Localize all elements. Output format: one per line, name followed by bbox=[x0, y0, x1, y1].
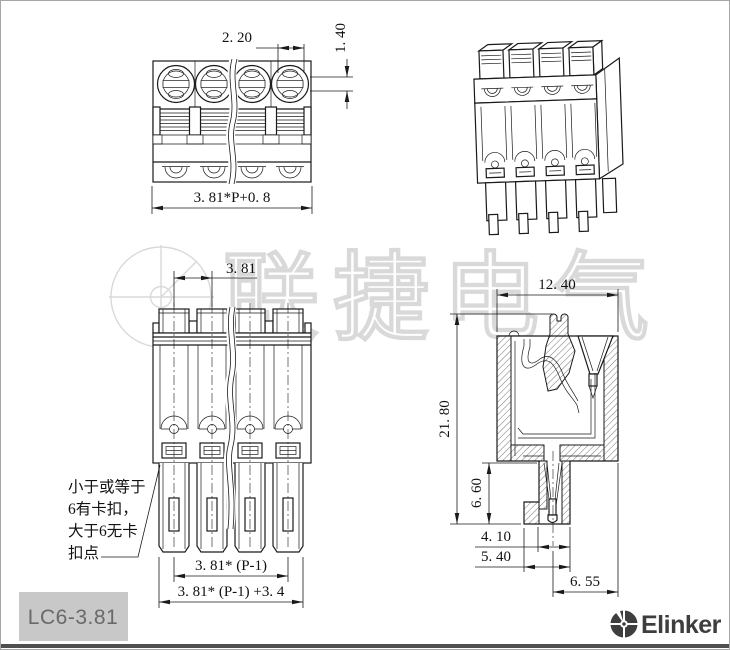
iso-rail bbox=[474, 75, 597, 103]
note-line-2: 6有卡扣， bbox=[68, 500, 138, 518]
model-label: LC6-3.81 bbox=[19, 592, 128, 641]
dim-slot-pitch: 2. 20 bbox=[222, 30, 252, 46]
note-line-1: 小于或等于 bbox=[68, 478, 146, 496]
model-label-text: LC6-3.81 bbox=[28, 606, 118, 629]
top-front-view: 2. 20 1. 40 3. 81*P+0. 8 bbox=[152, 23, 353, 214]
brand-logo: Elinker bbox=[610, 608, 722, 640]
dim-base-width: 5. 40 bbox=[481, 549, 511, 565]
dim-slot-width: 1. 40 bbox=[333, 23, 349, 53]
cad-drawing: 联捷电气 bbox=[1, 1, 729, 649]
iso-legs bbox=[486, 179, 598, 235]
dim-depth: 6. 55 bbox=[570, 574, 600, 590]
drawing-sheet: 联捷电气 bbox=[0, 0, 730, 650]
note-line-3: 大于6无卡 bbox=[68, 522, 138, 540]
dim-section-height: 21. 80 bbox=[437, 400, 453, 438]
dim-section-width: 12. 40 bbox=[538, 277, 576, 293]
iso-towers bbox=[479, 41, 603, 79]
plug-front-view: 3. 81 3. 81* (P-1) 3. 81* (P-1) +3. 4 小于… bbox=[68, 261, 311, 608]
dim-top-total-width: 3. 81*P+0. 8 bbox=[194, 190, 271, 206]
dim-plug-total-width: 3. 81* (P-1) +3. 4 bbox=[178, 584, 285, 600]
dim-pole-span: 3. 81* (P-1) bbox=[195, 558, 267, 574]
dim-pitch: 3. 81 bbox=[226, 261, 256, 277]
sheet-bottom-border bbox=[1, 644, 729, 648]
iso-face bbox=[475, 99, 600, 183]
brand-wordmark: Elinker bbox=[641, 611, 722, 639]
note-line-4: 扣点 bbox=[68, 544, 99, 562]
isometric-view bbox=[473, 40, 626, 235]
iso-side-face bbox=[595, 58, 623, 179]
dim-pin-length: 6. 60 bbox=[469, 478, 485, 508]
dim-pin-offset: 4. 10 bbox=[481, 529, 511, 545]
snap-fit-note: 小于或等于 6有卡扣， 大于6无卡 扣点 bbox=[68, 465, 160, 562]
